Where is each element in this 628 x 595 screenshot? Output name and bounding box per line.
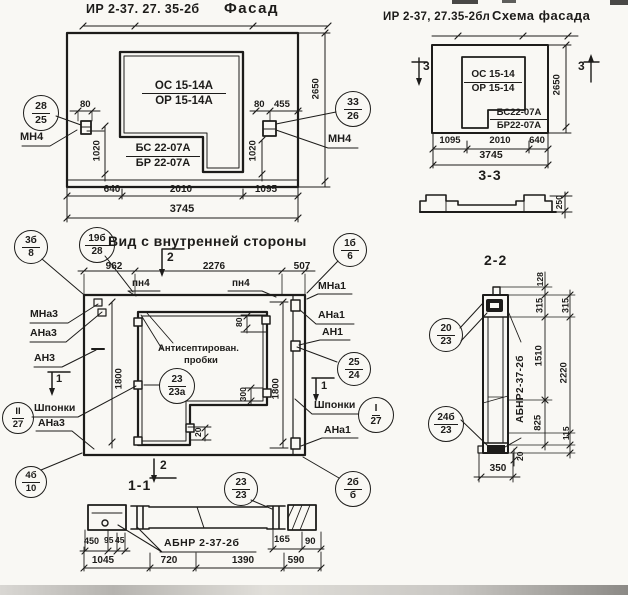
dim-720: 720 — [154, 556, 184, 567]
position-bubble-19b-28: 19б28 — [79, 227, 115, 263]
dim-2010: 2010 — [158, 185, 204, 196]
window-mark-denominator: ОР 15-14А — [142, 94, 226, 107]
position-bubble-23-23: 2323 — [224, 472, 258, 506]
dim-165: 165 — [274, 535, 290, 545]
dim-45: 45 — [115, 536, 124, 545]
dim-1800-right: 1800 — [271, 371, 281, 407]
joint-label-pn4-right: пн4 — [232, 279, 250, 290]
schema-dim-2010: 2010 — [480, 136, 520, 146]
dim-590: 590 — [282, 556, 310, 567]
facade-title: Фасад — [224, 1, 279, 17]
label-an3: АН3 — [34, 353, 55, 364]
position-bubble-2b-b: 2бб — [335, 471, 371, 507]
section-3-3-profile — [420, 192, 572, 218]
position-bubble-25-24: 2524 — [337, 352, 371, 386]
dim-1390: 1390 — [226, 556, 260, 567]
label-ana3-bottom: АНа3 — [38, 418, 65, 429]
label-an1: АН1 — [322, 327, 343, 338]
schema-dim-3745: 3745 — [468, 150, 514, 161]
dim-350: 350 — [484, 464, 512, 475]
cut-mark-3-right: 3 — [578, 60, 585, 73]
panel-mark-numerator: БС 22-07А — [126, 143, 200, 157]
position-bubble-3b-8: 3б8 — [14, 230, 48, 264]
facade-title-code: ИР 2-37. 27. 35-2б — [86, 3, 200, 16]
drawing-sheet: ИР 2-37. 27. 35-2б Фасад ИР 2-37, 27.35-… — [0, 0, 628, 595]
dim-962: 962 — [96, 262, 132, 273]
schema-title: Схема фасада — [492, 9, 590, 23]
dim-315-outer: 315 — [562, 288, 571, 324]
cut-mark-1-left: 1 — [56, 374, 62, 386]
position-bubble-I-27: I27 — [358, 397, 394, 433]
section-2-2-title: 2-2 — [484, 253, 507, 268]
dim-450: 450 — [84, 537, 99, 546]
position-bubble-23-23a: 2323а — [159, 368, 195, 404]
part-label-abnr-vertical: АБНР2-37-2б — [516, 339, 526, 439]
inner-view-title: Вид с внутренней стороны — [108, 234, 307, 249]
cut-mark-3-left: 3 — [423, 60, 430, 73]
dim-1020-right: 1020 — [248, 133, 258, 169]
dim-20-section: 20 — [516, 438, 525, 474]
anchor-label-mn4-left: МН4 — [20, 132, 43, 144]
dim-2220: 2220 — [559, 355, 569, 391]
dim-315-inner: 315 — [536, 288, 545, 324]
label-ana1-bottom: АНа1 — [324, 425, 351, 436]
position-bubble-20-23: 2023 — [429, 318, 463, 352]
dim-1800-left: 1800 — [114, 361, 124, 397]
section-3-3-dim-250: 250 — [555, 184, 564, 220]
cut-mark-2-top: 2 — [167, 251, 174, 264]
dim-90: 90 — [305, 537, 316, 547]
part-label-abnr: АБНР 2-37-2б — [164, 538, 239, 549]
dim-80-inner: 80 — [235, 304, 244, 340]
dim-455: 455 — [274, 100, 290, 110]
section-3-3-title: 3-3 — [468, 168, 512, 183]
dim-80-right: 80 — [254, 100, 265, 110]
dim-20-inner: 20 — [194, 414, 203, 450]
dim-1095: 1095 — [246, 185, 286, 196]
schema-dim-2650: 2650 — [552, 67, 562, 103]
dim-2650-facade: 2650 — [311, 71, 321, 107]
note-antiseptic-line2: пробки — [184, 356, 218, 366]
dim-507: 507 — [284, 262, 320, 273]
dim-640: 640 — [96, 185, 128, 196]
dim-3745: 3745 — [152, 204, 212, 216]
schema-title-code: ИР 2-37, 27.35-2бл — [383, 11, 490, 23]
schema-dim-1095: 1095 — [434, 136, 466, 146]
position-bubble-1b-6: 1б6 — [333, 233, 367, 267]
joint-label-pn4-left: пн4 — [132, 279, 150, 290]
dim-2276: 2276 — [192, 262, 236, 273]
dim-95: 95 — [104, 536, 113, 545]
label-mna1-top: МНа1 — [318, 281, 346, 292]
position-bubble-4b-10: 4б10 — [15, 466, 47, 498]
anchor-label-mn4-right: МН4 — [328, 134, 351, 146]
dim-300: 300 — [239, 376, 248, 412]
dim-115: 115 — [562, 415, 571, 451]
dim-1510: 1510 — [534, 338, 544, 374]
dim-80-left: 80 — [80, 100, 91, 110]
note-antiseptic-line1: Антисептирован. — [158, 344, 239, 354]
position-bubble-28-25: 28 25 — [23, 95, 59, 131]
dim-1020-left: 1020 — [92, 133, 102, 169]
panel-mark-denominator: БР 22-07А — [126, 157, 200, 170]
position-bubble-33-26: 33 26 — [335, 91, 371, 127]
schema-drawing — [412, 33, 599, 168]
label-mna3: МНа3 — [30, 309, 58, 320]
position-bubble-24b-23: 24б23 — [428, 406, 464, 442]
scan-smudges — [452, 0, 628, 5]
label-shponki-left: Шпонки — [34, 403, 75, 414]
cut-mark-2-bottom: 2 — [160, 459, 167, 472]
schema-panel-mark: БС22-07А БР22-07А — [490, 108, 548, 131]
section-1-1-title: 1-1 — [128, 478, 151, 493]
position-bubble-II-27: II27 — [2, 402, 34, 434]
facade-panel-mark: БС 22-07А БР 22-07А — [126, 143, 200, 169]
dim-1045: 1045 — [88, 556, 118, 567]
inner-view-drawing — [30, 249, 358, 509]
schema-window-mark: ОС 15-14 ОР 15-14 — [464, 70, 522, 94]
label-ana3: АНа3 — [30, 328, 57, 339]
label-shponki-right: Шпонки — [314, 400, 355, 411]
schema-dim-640: 640 — [524, 136, 550, 146]
cut-mark-1-right: 1 — [321, 381, 327, 393]
window-mark-numerator: ОС 15-14А — [142, 80, 226, 94]
label-ana1: АНа1 — [318, 310, 345, 321]
facade-window-mark: ОС 15-14А ОР 15-14А — [142, 80, 226, 107]
dim-825: 825 — [533, 405, 543, 441]
